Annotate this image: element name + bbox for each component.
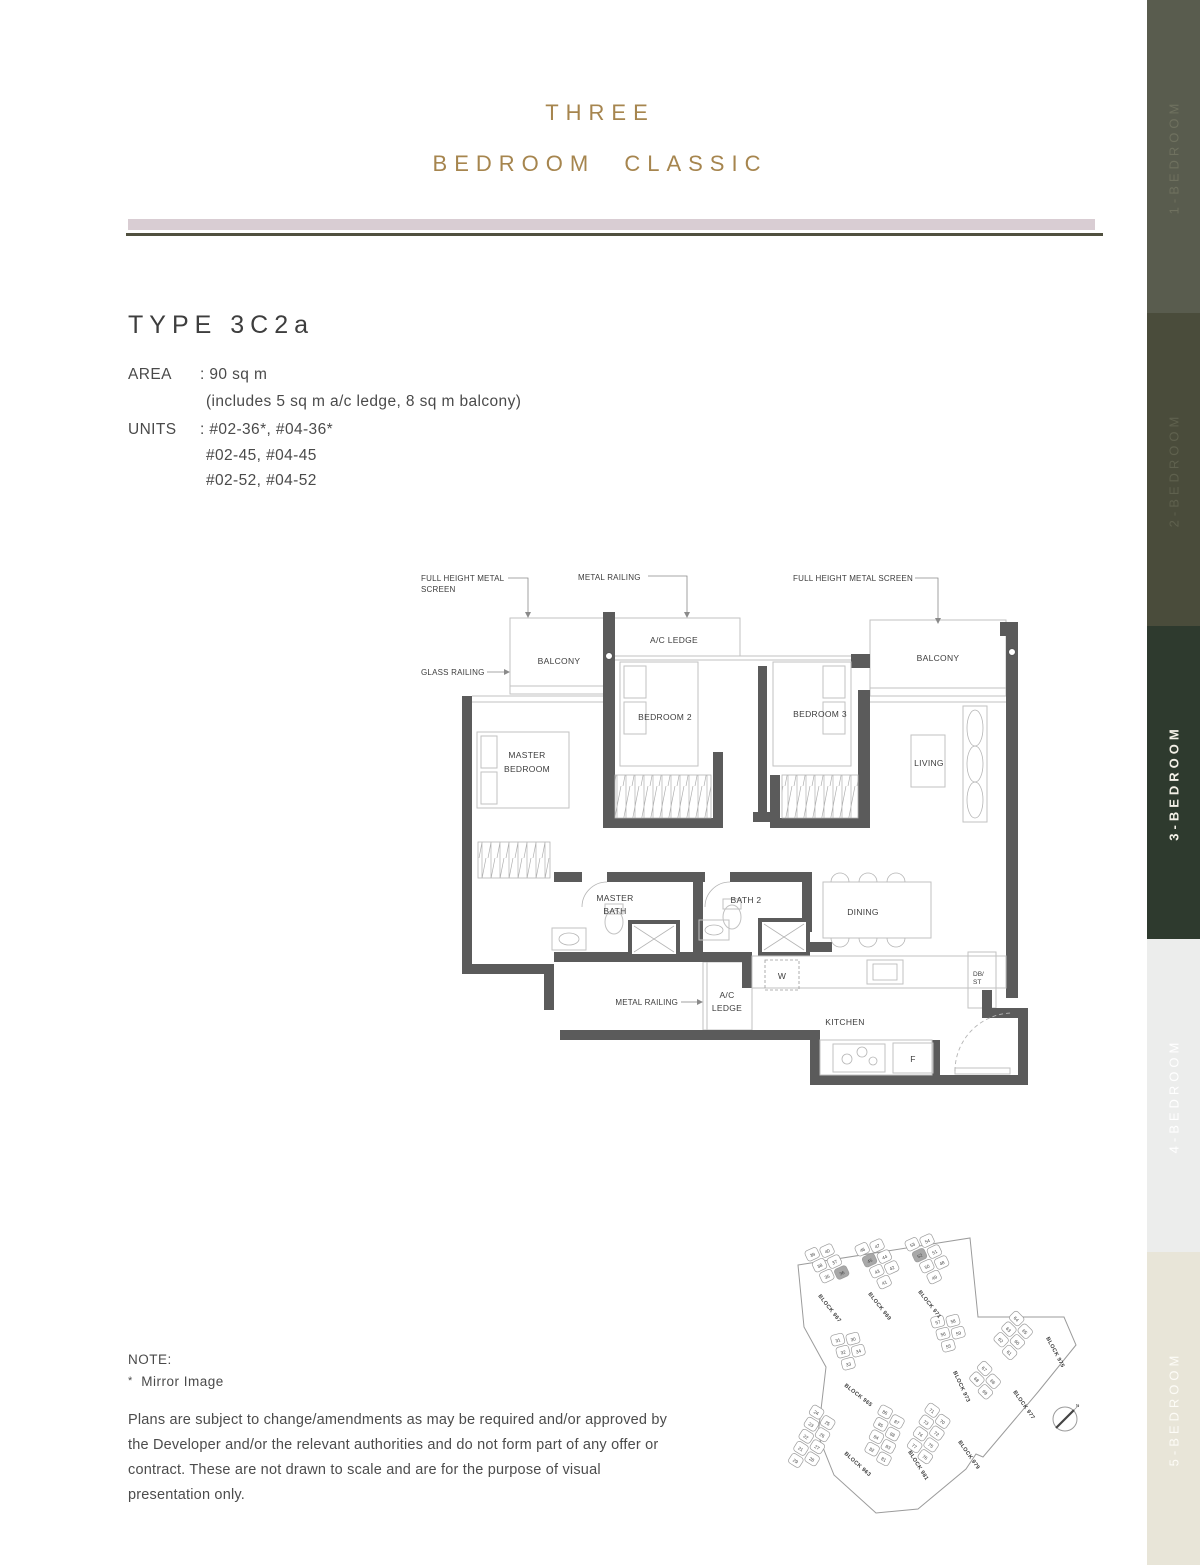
units-row3: #02-52, #04-52 — [128, 472, 317, 490]
area-note: (includes 5 sq m a/c ledge, 8 sq m balco… — [206, 393, 521, 411]
room-label-balcony-right: BALCONY — [917, 653, 960, 663]
room-label-living: LIVING — [914, 758, 944, 768]
label-fridge: F — [910, 1054, 916, 1064]
units-value-line2: #02-45, #04-45 — [206, 447, 317, 465]
disclaimer-text: Plans are subject to change/amendments a… — [128, 1408, 684, 1508]
label-washer: W — [778, 971, 786, 981]
note-heading: NOTE: — [128, 1352, 172, 1367]
room-label-ac-ledge-top: A/C LEDGE — [650, 635, 698, 645]
furniture — [477, 662, 1013, 1075]
units-row2: #02-45, #04-45 — [128, 447, 317, 465]
brochure-page: THREE BEDROOM CLASSIC TYPE 3C2a AREA : 9… — [0, 0, 1200, 1565]
units-row: UNITS : #02-36*, #04-36* — [128, 421, 333, 439]
units-label: UNITS — [128, 421, 200, 439]
units-value-line3: #02-52, #04-52 — [206, 472, 317, 490]
sidebar-item-2-bedroom[interactable]: 2-BEDROOM — [1147, 313, 1200, 626]
floor-plan: FULL HEIGHT METAL SCREEN METAL RAILING F… — [415, 570, 1045, 1115]
label-full-height-metal-screen-left: FULL HEIGHT METAL — [421, 574, 505, 583]
svg-text:SCREEN: SCREEN — [421, 585, 456, 594]
svg-text:ST: ST — [973, 979, 981, 986]
area-label: AREA — [128, 366, 200, 384]
shower-boxes — [630, 920, 808, 956]
label-db-st: DB/ — [973, 971, 984, 978]
room-label-dining: DINING — [847, 907, 879, 917]
bedroom-type-nav: 1-BEDROOM 2-BEDROOM 3-BEDROOM 4-BEDROOM … — [1147, 0, 1200, 1565]
area-note-row: (includes 5 sq m a/c ledge, 8 sq m balco… — [128, 393, 521, 411]
label-metal-railing-bottom: METAL RAILING — [615, 998, 678, 1007]
site-map: 3940383735364647454443424153545251504849… — [788, 1232, 1110, 1537]
label-glass-railing: GLASS RAILING — [421, 668, 485, 677]
room-label-master-bedroom: MASTER — [508, 750, 545, 760]
compass-icon: N — [1053, 1403, 1079, 1431]
room-label-bedroom2: BEDROOM 2 — [638, 712, 692, 722]
sidebar-item-1-bedroom[interactable]: 1-BEDROOM — [1147, 0, 1200, 313]
compass-n-label: N — [1076, 1403, 1079, 1408]
svg-text:BATH: BATH — [603, 906, 626, 916]
label-full-height-metal-screen-right: FULL HEIGHT METAL SCREEN — [793, 574, 913, 583]
svg-text:BEDROOM: BEDROOM — [504, 764, 550, 774]
svg-text:LEDGE: LEDGE — [712, 1003, 742, 1013]
room-label-kitchen: KITCHEN — [825, 1017, 864, 1027]
room-label-master-bath: MASTER — [596, 893, 633, 903]
page-title-line2: BEDROOM CLASSIC — [0, 151, 1200, 177]
label-metal-railing-top: METAL RAILING — [578, 573, 641, 582]
page-title-line1: THREE — [0, 100, 1200, 126]
note-mirror-image: * Mirror Image — [128, 1374, 224, 1389]
divider-bar-dark — [126, 233, 1103, 236]
sidebar-item-3-bedroom[interactable]: 3-BEDROOM — [1147, 626, 1200, 939]
unit-type-title: TYPE 3C2a — [128, 311, 314, 340]
room-label-bedroom3: BEDROOM 3 — [793, 709, 847, 719]
units-value-line1: : #02-36*, #04-36* — [200, 421, 333, 439]
room-label-balcony-left: BALCONY — [538, 656, 581, 666]
sidebar-item-4-bedroom[interactable]: 4-BEDROOM — [1147, 939, 1200, 1252]
room-label-ac-ledge-bottom: A/C — [719, 990, 734, 1000]
area-row: AREA : 90 sq m — [128, 366, 267, 384]
sidebar-item-5-bedroom[interactable]: 5-BEDROOM — [1147, 1252, 1200, 1565]
room-label-bath2: BATH 2 — [731, 895, 762, 905]
area-value: : 90 sq m — [200, 366, 267, 384]
divider-bar-pink — [128, 219, 1095, 230]
